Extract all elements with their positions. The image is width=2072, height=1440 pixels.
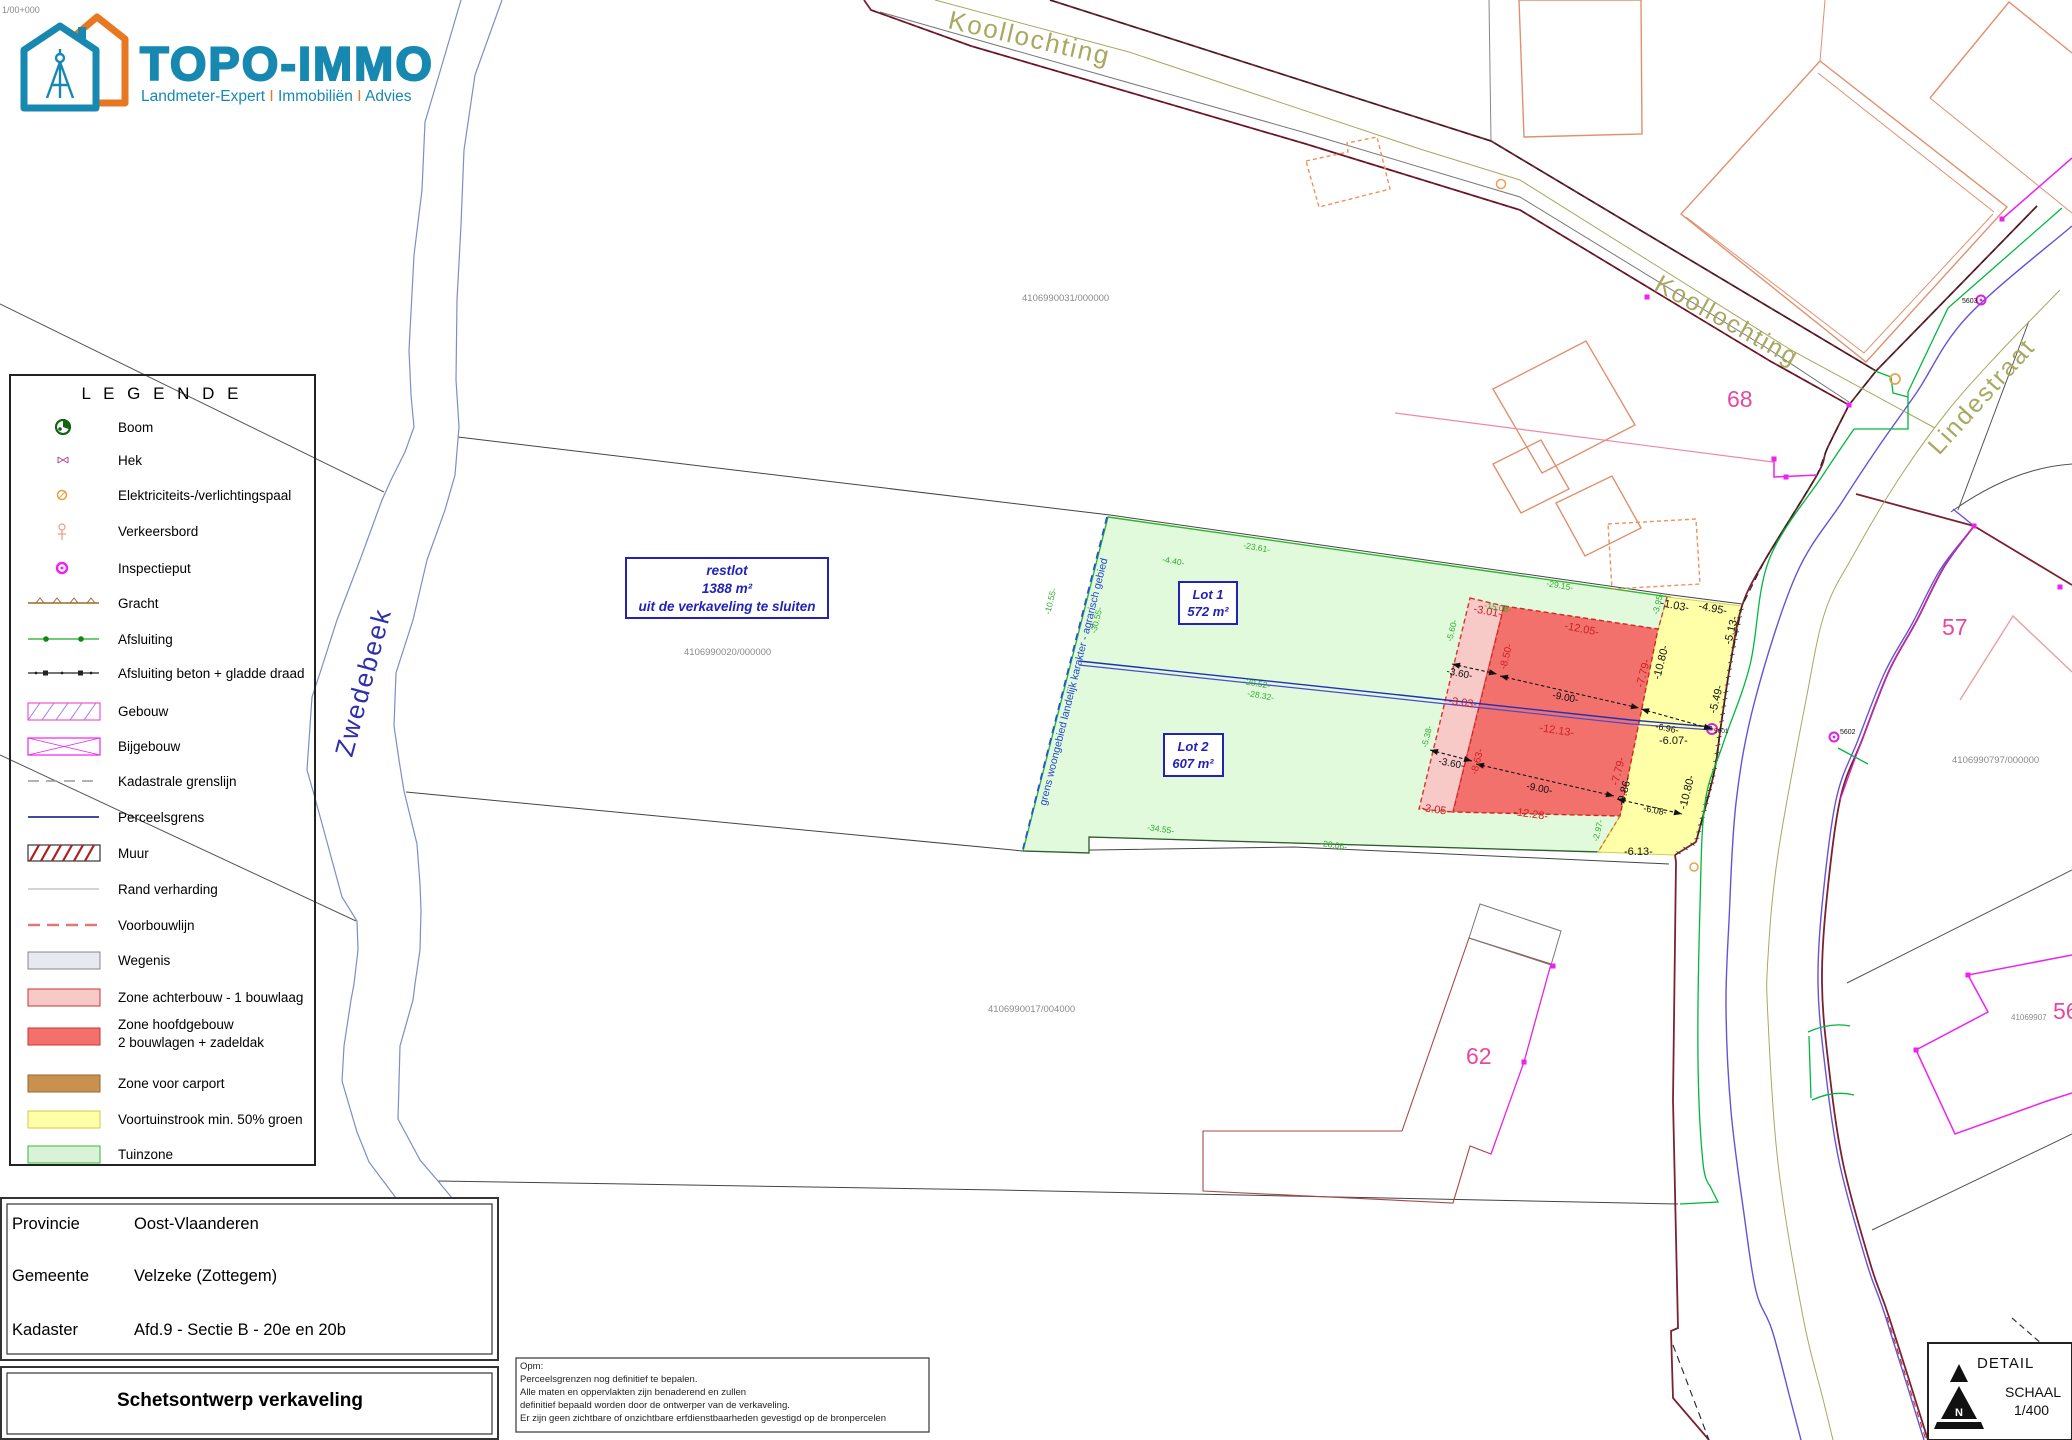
svg-text:1388 m²: 1388 m² <box>702 581 753 596</box>
svg-text:Tuinzone: Tuinzone <box>118 1147 173 1162</box>
svg-text:Afsluiting beton + gladde draa: Afsluiting beton + gladde draad <box>118 666 305 681</box>
svg-text:-6.13-: -6.13- <box>1624 846 1653 858</box>
svg-text:TOPO-IMMO: TOPO-IMMO <box>140 37 434 90</box>
svg-text:56: 56 <box>2053 998 2072 1024</box>
svg-text:Gemeente: Gemeente <box>12 1267 89 1285</box>
svg-text:Alle maten en oppervlakten zij: Alle maten en oppervlakten zijn benadere… <box>520 1387 746 1398</box>
svg-text:607 m²: 607 m² <box>1172 756 1214 771</box>
svg-text:Kadaster: Kadaster <box>12 1321 79 1339</box>
svg-text:Voorbouwlijn: Voorbouwlijn <box>118 918 195 933</box>
svg-text:Kadastrale grenslijn: Kadastrale grenslijn <box>118 774 237 789</box>
svg-text:Zone hoofdgebouw: Zone hoofdgebouw <box>118 1017 234 1032</box>
svg-text:DETAIL: DETAIL <box>1977 1355 2034 1372</box>
svg-text:5601: 5601 <box>1714 728 1729 735</box>
svg-text:4106990031/000000: 4106990031/000000 <box>1022 293 1109 304</box>
svg-text:Verkeersbord: Verkeersbord <box>118 524 198 539</box>
svg-text:5602: 5602 <box>1840 729 1856 736</box>
svg-text:restlot: restlot <box>706 563 748 578</box>
svg-text:Schetsontwerp verkaveling: Schetsontwerp verkaveling <box>117 1390 363 1411</box>
svg-text:5603: 5603 <box>1962 298 1978 305</box>
svg-text:Hek: Hek <box>118 453 142 468</box>
svg-text:2 bouwlagen + zadeldak: 2 bouwlagen + zadeldak <box>118 1035 264 1050</box>
svg-text:Afd.9 - Sectie B - 20e en 20b: Afd.9 - Sectie B - 20e en 20b <box>134 1321 346 1339</box>
svg-text:Inspectieput: Inspectieput <box>118 561 191 576</box>
svg-text:Rand verharding: Rand verharding <box>118 882 218 897</box>
svg-text:N: N <box>1955 1407 1963 1419</box>
svg-text:Lot 1: Lot 1 <box>1192 587 1223 602</box>
svg-text:Koollochting: Koollochting <box>946 5 1114 71</box>
svg-text:Wegenis: Wegenis <box>118 953 171 968</box>
svg-text:Zone achterbouw - 1 bouwlaag: Zone achterbouw - 1 bouwlaag <box>118 990 303 1005</box>
svg-text:Voortuinstrook min. 50% groen: Voortuinstrook min. 50% groen <box>118 1112 303 1127</box>
svg-text:Landmeter-Expert I Immobilië: Landmeter-Expert I Immobiliën I Advies <box>141 88 412 105</box>
svg-text:Gebouw: Gebouw <box>118 704 169 719</box>
svg-text:-6.07-: -6.07- <box>1659 735 1688 747</box>
svg-text:572 m²: 572 m² <box>1187 604 1229 619</box>
svg-text:1/00+000: 1/00+000 <box>2 5 40 15</box>
svg-text:Perceelsgrens: Perceelsgrens <box>118 810 205 825</box>
svg-text:Boom: Boom <box>118 420 153 435</box>
svg-text:Perceelsgrenzen nog definitief: Perceelsgrenzen nog definitief te bepale… <box>520 1374 697 1385</box>
svg-text:L E G E N D E: L E G E N D E <box>82 384 243 403</box>
svg-text:41069907: 41069907 <box>2011 1013 2047 1022</box>
svg-text:Opm:: Opm: <box>520 1361 543 1372</box>
svg-text:4106990017/004000: 4106990017/004000 <box>988 1004 1075 1015</box>
svg-text:4106990797/000000: 4106990797/000000 <box>1952 755 2039 766</box>
svg-text:Oost-Vlaanderen: Oost-Vlaanderen <box>134 1215 259 1233</box>
svg-text:definitief bepaald worden door: definitief bepaald worden door de ontwer… <box>520 1400 790 1411</box>
svg-text:Afsluiting: Afsluiting <box>118 632 173 647</box>
svg-text:Gracht: Gracht <box>118 596 159 611</box>
svg-text:4106990020/000000: 4106990020/000000 <box>684 647 771 658</box>
svg-text:Provincie: Provincie <box>12 1215 80 1233</box>
svg-text:Koollochting: Koollochting <box>1650 270 1804 372</box>
svg-text:Zwedebeek: Zwedebeek <box>329 605 397 760</box>
svg-text:Lot 2: Lot 2 <box>1177 739 1209 754</box>
svg-text:Zone voor carport: Zone voor carport <box>118 1076 225 1091</box>
svg-text:1/400: 1/400 <box>2014 1402 2049 1418</box>
svg-text:62: 62 <box>1466 1043 1492 1069</box>
svg-text:SCHAAL: SCHAAL <box>2005 1384 2061 1400</box>
svg-text:uit de verkaveling te sluiten: uit de verkaveling te sluiten <box>638 599 815 614</box>
svg-text:Bijgebouw: Bijgebouw <box>118 739 181 754</box>
svg-text:Velzeke (Zottegem): Velzeke (Zottegem) <box>134 1267 277 1285</box>
svg-text:68: 68 <box>1727 386 1753 412</box>
svg-text:Elektriciteits-/verlichtingspa: Elektriciteits-/verlichtingspaal <box>118 488 291 503</box>
svg-text:57: 57 <box>1942 614 1968 640</box>
svg-text:-10.55-: -10.55- <box>1042 587 1058 616</box>
svg-text:Muur: Muur <box>118 846 149 861</box>
svg-text:Er zijn geen zichtbare of onzi: Er zijn geen zichtbare of onzichtbare er… <box>520 1413 886 1424</box>
